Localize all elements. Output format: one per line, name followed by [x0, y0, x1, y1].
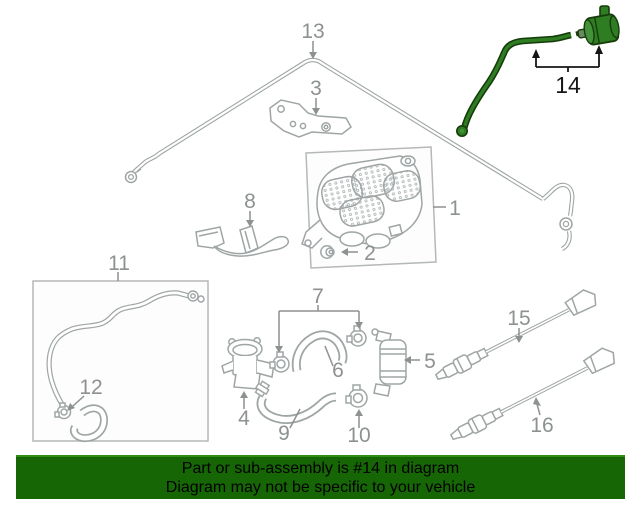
part-15-sensor[interactable] [432, 286, 599, 384]
part-label-6[interactable]: 6 [332, 359, 344, 382]
part-2-grommet[interactable] [321, 246, 334, 258]
part-8-bracket[interactable] [196, 226, 288, 256]
banner-line-1: Part or sub-assembly is #14 in diagram [182, 459, 459, 478]
parts-diagram: 14 13 3 8 1 2 11 [0, 0, 640, 455]
part-label-12[interactable]: 12 [79, 376, 102, 399]
part-label-15[interactable]: 15 [507, 307, 530, 330]
part-label-16[interactable]: 16 [530, 414, 553, 437]
part-label-8[interactable]: 8 [244, 190, 256, 213]
part-label-10[interactable]: 10 [347, 424, 370, 447]
banner-line-2: Diagram may not be specific to your vehi… [166, 478, 475, 497]
part-label-4[interactable]: 4 [238, 407, 250, 430]
part-14-highlighted-valve[interactable] [574, 3, 621, 47]
part-3-bracket[interactable] [270, 100, 351, 137]
part-label-2[interactable]: 2 [364, 242, 376, 265]
part-label-3[interactable]: 3 [310, 77, 322, 100]
part-9-hose[interactable] [254, 380, 336, 419]
part-label-13[interactable]: 13 [301, 20, 324, 43]
part-4-valve[interactable] [222, 338, 274, 389]
part-label-9[interactable]: 9 [278, 422, 290, 445]
part-label-7[interactable]: 7 [312, 285, 324, 308]
part-7-clamp-right[interactable] [347, 326, 366, 346]
part-label-5[interactable]: 5 [424, 350, 436, 373]
pipe-end-fitting-right [560, 218, 572, 230]
parts-catalog-page: 14 13 3 8 1 2 11 [0, 0, 640, 512]
part-10-clamp[interactable] [346, 385, 367, 407]
part-label-1[interactable]: 1 [449, 197, 461, 220]
callout-14[interactable]: 14 [532, 45, 603, 98]
part-5-pump[interactable] [372, 329, 406, 396]
part-label-11[interactable]: 11 [108, 252, 130, 275]
part-label-14[interactable]: 14 [555, 72, 581, 98]
diagram-disclaimer-banner: Part or sub-assembly is #14 in diagram D… [16, 455, 625, 499]
